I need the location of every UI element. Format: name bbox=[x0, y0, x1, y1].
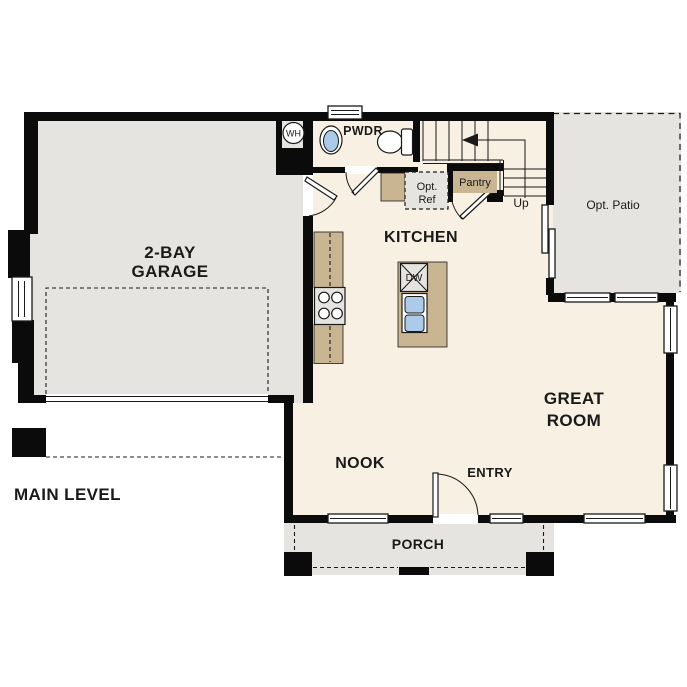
wall-pantry-top bbox=[447, 164, 503, 171]
island-sink-basin-1 bbox=[405, 297, 424, 314]
wall-east-upper bbox=[546, 112, 554, 205]
label-dishwasher: DW bbox=[406, 273, 423, 284]
label-nook: NOOK bbox=[335, 455, 385, 472]
burner-icon-2 bbox=[332, 292, 343, 303]
island-sink-basin-2 bbox=[405, 315, 424, 332]
patio-slider-panel-2 bbox=[549, 229, 555, 278]
label-stairs-up: Up bbox=[513, 196, 529, 210]
entry-door-leaf bbox=[433, 473, 438, 517]
window-powder-top bbox=[328, 106, 362, 119]
counter-by-ref bbox=[381, 173, 405, 201]
porch-post-right bbox=[526, 552, 554, 576]
label-garage-line2: GARAGE bbox=[131, 262, 208, 281]
powder-sink-basin bbox=[324, 131, 339, 152]
porch-step-block bbox=[399, 567, 429, 575]
wall-top bbox=[24, 112, 554, 121]
toilet-tank-icon bbox=[402, 129, 413, 155]
burner-icon-1 bbox=[319, 292, 330, 303]
label-patio: Opt. Patio bbox=[586, 198, 640, 212]
burner-icon-4 bbox=[332, 308, 343, 319]
garage-door bbox=[46, 394, 268, 404]
label-pantry: Pantry bbox=[459, 177, 491, 189]
wall-garage-east-lower bbox=[303, 216, 313, 403]
label-great-room-line1: GREAT bbox=[544, 389, 604, 408]
label-opt-ref-line1: Opt. bbox=[417, 181, 438, 193]
label-main-level: MAIN LEVEL bbox=[14, 485, 121, 504]
garage-door-opening bbox=[46, 394, 268, 404]
wall-wh-bottom bbox=[276, 148, 313, 175]
wall-powder-east bbox=[413, 112, 420, 162]
patio-slider-panel-1 bbox=[542, 205, 548, 253]
wall-powder-south-left bbox=[313, 167, 345, 173]
label-entry: ENTRY bbox=[467, 465, 513, 480]
floor-great-room bbox=[548, 293, 674, 523]
label-opt-ref-line2: Ref bbox=[418, 194, 436, 206]
wall-east-lower bbox=[546, 278, 554, 295]
counter-west-lower bbox=[314, 325, 343, 364]
wall-wh-stub bbox=[276, 112, 282, 153]
wall-garage-west-upper bbox=[24, 112, 38, 234]
counter-west-upper bbox=[314, 232, 343, 288]
label-porch: PORCH bbox=[392, 536, 445, 552]
wall-garage-west-mid bbox=[12, 320, 34, 363]
porch-post-left bbox=[284, 552, 312, 576]
window-garage-west bbox=[12, 277, 32, 321]
entry-door-opening bbox=[433, 514, 478, 524]
label-garage-line1: 2-BAY bbox=[144, 243, 196, 262]
burner-icon-3 bbox=[319, 308, 330, 319]
floor-plan-svg: 2-BAY GARAGE KITCHEN GREAT ROOM NOOK ENT… bbox=[0, 0, 687, 687]
wall-nook-west bbox=[284, 395, 293, 523]
label-great-room-line2: ROOM bbox=[547, 411, 601, 430]
wall-driveway-step bbox=[12, 428, 46, 457]
label-kitchen: KITCHEN bbox=[384, 229, 458, 246]
wall-garage-west-pilaster bbox=[8, 230, 30, 278]
label-powder: PWDR bbox=[343, 124, 383, 138]
floor-plan: 2-BAY GARAGE KITCHEN GREAT ROOM NOOK ENT… bbox=[0, 0, 687, 687]
label-water-heater: WH bbox=[286, 129, 301, 139]
